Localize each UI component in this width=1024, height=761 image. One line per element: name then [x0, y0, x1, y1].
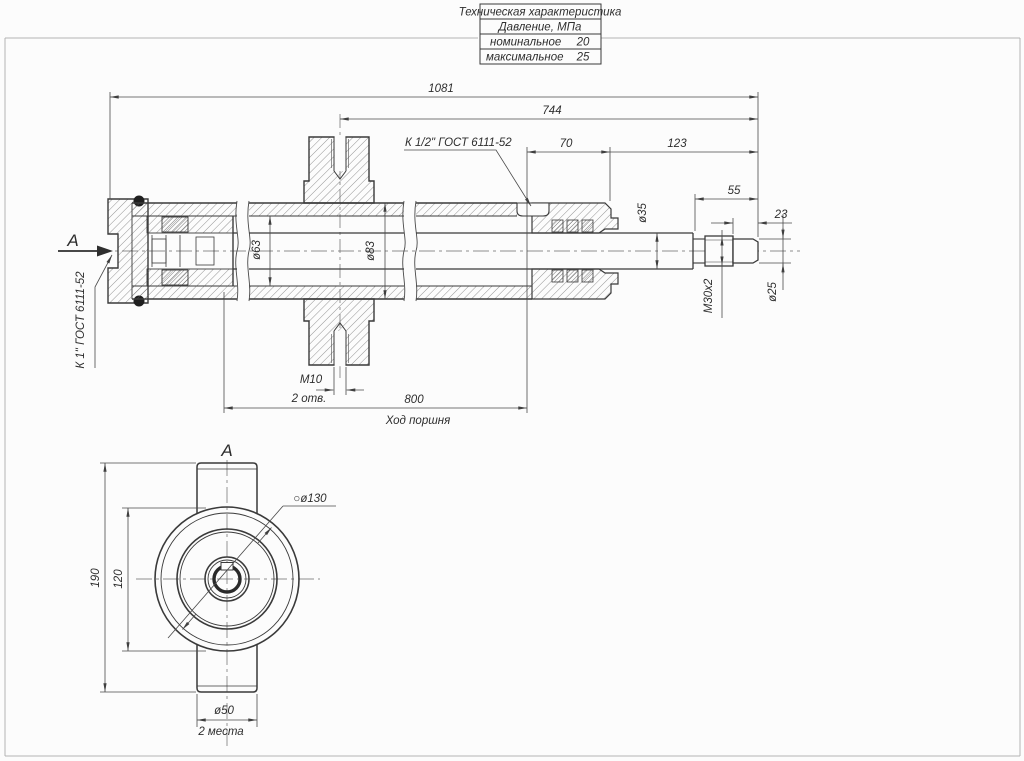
dim-body-diameter: 120: [113, 569, 125, 589]
dim-boss-thread: М10: [300, 374, 323, 386]
dim-axis-to-end: 744: [542, 105, 561, 117]
dim-boss-diameter: ø50: [214, 705, 234, 717]
dim-rod-diameter: ø35: [637, 202, 649, 222]
section-letter-main: А: [66, 231, 78, 250]
dim-boss-places-note: 2 места: [197, 726, 243, 738]
dim-overall-height: 190: [90, 568, 102, 588]
hydraulic-cylinder-drawing: Техническая характеристика Давление, МПа…: [0, 0, 1024, 761]
section-a-view: А ○ø130: [90, 441, 336, 748]
port-right-label: К 1/2" ГОСТ 6111-52: [405, 137, 512, 149]
dim-rod-thread: M30x2: [703, 278, 715, 313]
dim-tube-diameter: ø83: [365, 240, 377, 260]
trunnion-boss-top: [304, 136, 374, 203]
dim-tip-diameter: ø25: [767, 281, 779, 301]
spec-table: Техническая характеристика Давление, МПа…: [459, 4, 622, 64]
section-extension-lines: [100, 463, 257, 727]
dim-tip-length: 23: [774, 209, 788, 221]
dim-rod-end-length: 55: [728, 185, 741, 197]
rod-tip: [733, 239, 758, 263]
section-dimension-labels: 190 120 ø50 2 места: [90, 568, 244, 738]
spec-row-max-label: максимальное: [486, 52, 564, 64]
spec-row-max-value: 25: [576, 52, 590, 64]
dim-piston-stroke-label: Ход поршня: [385, 415, 451, 427]
section-cut-arrow: А: [58, 231, 113, 257]
keyway-notch: [221, 563, 233, 571]
main-section-view: А К 1" ГОСТ 6111-52 К 1/2" ГОСТ 6111-52: [58, 83, 800, 427]
port-left-label: К 1" ГОСТ 6111-52: [75, 271, 87, 369]
piston-seal-top: [162, 217, 188, 232]
trunnion-boss-bottom: [304, 299, 374, 366]
spec-row-nominal-label: номинальное: [490, 37, 561, 49]
piston-seal-bottom: [162, 270, 188, 285]
drawing-sheet: Техническая характеристика Давление, МПа…: [0, 0, 1024, 761]
dim-rod-extension: 123: [667, 138, 687, 150]
dim-gland-span: 70: [560, 138, 573, 150]
dim-bore-diameter: ø63: [251, 239, 263, 259]
spec-table-group: Давление, МПа: [497, 22, 582, 34]
sheet-frame: [5, 38, 1020, 756]
port-right-callout: К 1/2" ГОСТ 6111-52: [404, 137, 531, 206]
rod-thread-section: [705, 236, 733, 266]
port-left-callout: К 1" ГОСТ 6111-52: [75, 255, 112, 369]
dim-boss-holes-note: 2 отв.: [291, 393, 327, 405]
dim-piston-stroke: 800: [404, 394, 424, 406]
dim-total-length: 1081: [428, 83, 454, 95]
section-letter-view: А: [220, 441, 232, 460]
spec-table-title: Техническая характеристика: [459, 7, 622, 19]
spec-row-nominal-value: 20: [576, 37, 590, 49]
port-recess: [517, 203, 549, 216]
dim-flange-diameter: ○ø130: [293, 493, 327, 505]
